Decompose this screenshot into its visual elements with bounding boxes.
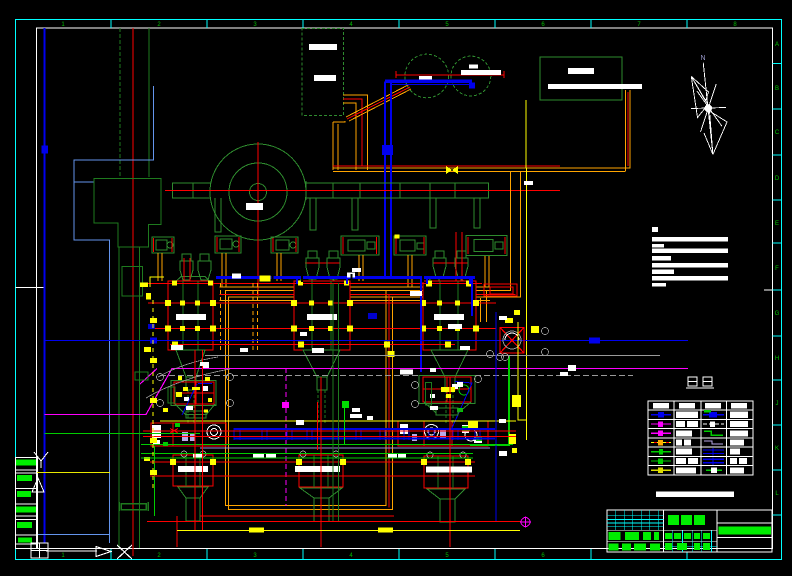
svg-text:J: J bbox=[776, 401, 779, 407]
svg-text:B: B bbox=[775, 86, 779, 92]
svg-text:H: H bbox=[775, 356, 779, 362]
svg-text:C: C bbox=[775, 130, 780, 136]
svg-text:A: A bbox=[775, 42, 779, 48]
svg-text:F: F bbox=[775, 266, 779, 272]
svg-text:G: G bbox=[775, 311, 780, 317]
svg-text:K: K bbox=[775, 446, 779, 452]
svg-text:E: E bbox=[775, 221, 779, 227]
svg-text:N: N bbox=[700, 55, 705, 62]
svg-text:D: D bbox=[775, 176, 780, 182]
